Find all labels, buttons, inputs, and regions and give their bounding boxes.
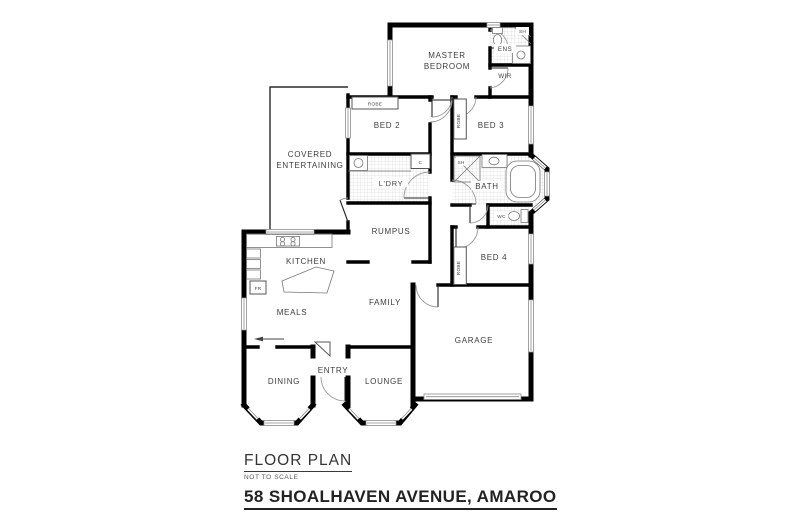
room-label-bed3-robe: ROBE <box>456 114 462 128</box>
room-label-covered-line1: COVERED <box>288 150 332 159</box>
room-label-rumpus: RUMPUS <box>372 227 411 236</box>
room-label-fridge: FR <box>255 286 262 292</box>
kitchen-bench <box>247 234 333 248</box>
kitchen-pantry <box>247 249 261 279</box>
room-label-master-line2: BEDROOM <box>424 62 470 71</box>
meals-arrow <box>254 337 284 342</box>
room-label-master-line1: MASTER <box>428 51 466 60</box>
bathtub <box>506 161 540 202</box>
room-label-laundry: L'DRY <box>379 179 404 188</box>
room-label-lounge: LOUNGE <box>365 377 403 386</box>
room-label-bed4: BED 4 <box>481 253 508 262</box>
corner-cupboard <box>315 342 330 356</box>
room-label-ens: ENS <box>498 46 512 53</box>
floor-plan-page: MASTER BEDROOM ENS SH WIR ROBE BED 2 ROB… <box>0 0 790 527</box>
room-label-entry: ENTRY <box>318 366 348 375</box>
room-label-bed2-robe: ROBE <box>368 102 382 108</box>
covered-entertaining-outline <box>270 87 348 232</box>
plan-scale-note: NOT TO SCALE <box>244 474 352 481</box>
room-label-bed4-robe: ROBE <box>456 261 462 275</box>
room-label-bed2: BED 2 <box>374 121 401 130</box>
room-label-meals: MEALS <box>277 308 308 317</box>
plan-heading: FLOOR PLAN <box>244 452 352 472</box>
room-label-bath-shower: SH <box>457 160 464 166</box>
ensuite-toilet <box>493 28 503 46</box>
room-label-ens-shower: SH <box>519 29 526 35</box>
property-address-text: 58 SHOALHAVEN AVENUE, AMAROO <box>244 487 557 510</box>
room-label-covered-line2: ENTERTAINING <box>276 161 343 170</box>
bath-vanity <box>482 155 507 168</box>
room-label-kitchen: KITCHEN <box>286 257 326 266</box>
room-label-bed3: BED 3 <box>478 121 505 130</box>
property-address: 58 SHOALHAVEN AVENUE, AMAROO <box>244 487 557 510</box>
room-label-wir: WIR <box>498 73 511 80</box>
room-label-laundry-cupboard: C <box>419 160 423 166</box>
room-label-wc: WC <box>497 214 506 220</box>
room-label-garage: GARAGE <box>455 336 493 345</box>
room-label-family: FAMILY <box>369 298 401 307</box>
floor-plan-drawing: MASTER BEDROOM ENS SH WIR ROBE BED 2 ROB… <box>0 0 790 527</box>
title-block: FLOOR PLAN NOT TO SCALE <box>244 452 352 481</box>
room-label-dining: DINING <box>268 377 300 386</box>
kitchen-island <box>282 267 334 293</box>
room-label-bath: BATH <box>475 182 499 191</box>
